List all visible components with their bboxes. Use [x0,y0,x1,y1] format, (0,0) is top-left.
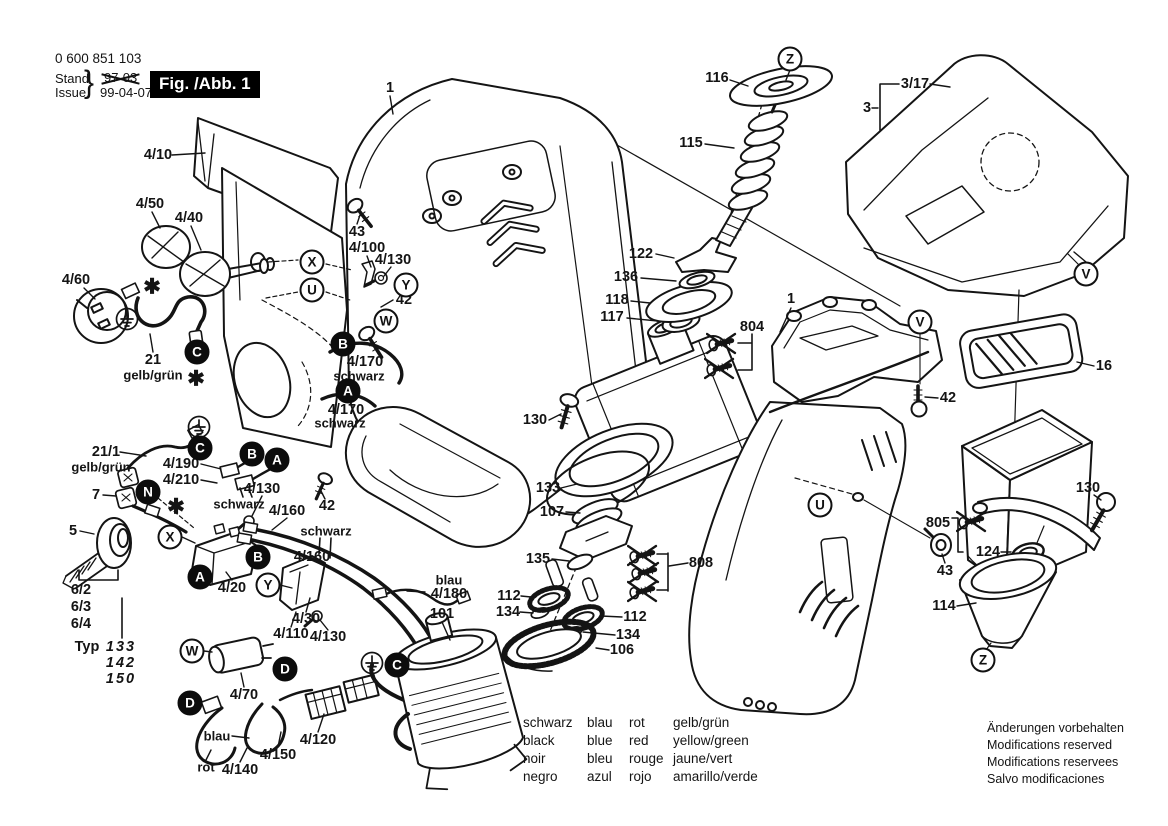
part-label-42: 42 [319,499,335,514]
revision-issue-date: 99-04-07 [100,85,152,100]
revision-superseded-date: 97-03 [104,70,137,85]
part-label-804: 804 [740,320,764,335]
part-label-rot: rot [197,761,214,774]
callout-v-icon: V [908,310,933,335]
part-label-134: 134 [496,605,520,620]
part-label-4-130: 4/130 [244,482,280,497]
part-label-122: 122 [629,247,653,262]
part-label-21-1: 21/1 [92,445,120,460]
part-label-130: 130 [523,413,547,428]
part-label-3-17: 3/17 [901,77,929,92]
part-label-130: 130 [1076,481,1100,496]
parts-diagram-page: 0 600 851 103 Stand Issue } 97-03 99-04-… [0,0,1168,826]
part-label-1: 1 [787,292,795,307]
part-label-42: 42 [940,391,956,406]
part-label-136: 136 [614,270,638,285]
part-label-4-60: 4/60 [62,273,90,288]
part-label-4-130: 4/130 [310,630,346,645]
part-label-4-160: 4/160 [269,504,305,519]
callout-y-icon: Y [394,273,419,298]
part-label-16: 16 [1096,359,1112,374]
part-label-808: 808 [689,556,713,571]
part-label-124: 124 [976,545,1000,560]
part-label-135: 135 [526,552,550,567]
callout-v-icon: V [1074,262,1099,287]
callout-u-icon: U [300,278,325,303]
part-label-blau: blau [204,730,231,743]
document-part-number: 0 600 851 103 [55,51,141,66]
callout-z-icon: Z [778,47,803,72]
modifications-reserved-note: Änderungen vorbehaltenModifications rese… [987,720,1124,788]
callout-c-icon: C [185,340,210,365]
part-label-6-2: 6/2 [71,583,91,598]
asterisk-icon: ✱ [143,275,161,300]
part-label-805: 805 [926,516,950,531]
part-label-112: 112 [623,610,646,625]
part-label-150: 150 [106,672,136,687]
callout-c-icon: C [188,436,213,461]
part-label-4-130: 4/130 [375,253,411,268]
part-label-typ: Typ [75,640,100,655]
asterisk-icon: ✱ [167,495,185,520]
part-label-4-40: 4/40 [175,211,203,226]
callout-d-icon: D [273,657,298,682]
part-label-117: 117 [600,310,623,325]
part-label-142: 142 [106,656,136,671]
revision-brace: } [84,65,94,101]
asterisk-icon: ✱ [187,367,205,392]
part-label-106: 106 [610,643,634,658]
part-label-43: 43 [349,225,365,240]
part-label-schwarz: schwarz [314,417,365,430]
part-label-5: 5 [69,524,77,539]
callout-x-icon: X [300,250,325,275]
callout-b-icon: B [240,442,265,467]
callout-a-icon: A [188,565,213,590]
color-legend-column: schwarzblacknoirnegro [523,714,573,786]
part-label-6-4: 6/4 [71,617,91,632]
part-label-4-120: 4/120 [300,733,336,748]
part-label-4-170: 4/170 [347,355,383,370]
part-label-4-110: 4/110 [273,627,309,642]
part-label-4-180: 4/180 [431,587,467,602]
part-label-115: 115 [679,136,702,151]
label-layer: 0 600 851 103 Stand Issue } 97-03 99-04-… [0,0,1168,826]
color-legend-column: gelb/grünyellow/greenjaune/vertamarillo/… [673,714,758,786]
callout-x-icon: X [158,525,183,550]
part-label-114: 114 [932,599,955,614]
part-label-4-160: 4/160 [294,550,330,565]
color-legend-column: rotredrougerojo [629,714,664,786]
callout-z-icon: Z [971,648,996,673]
part-label-112: 112 [497,589,520,604]
callout-d-icon: D [178,691,203,716]
part-label-3: 3 [863,101,871,116]
part-label-blau: blau [436,574,463,587]
part-label-116: 116 [705,71,728,86]
figure-title-badge: Fig. /Abb. 1 [150,71,260,98]
part-label-4-150: 4/150 [260,748,296,763]
part-label-4-70: 4/70 [230,688,258,703]
part-label-43: 43 [937,564,953,579]
part-label-7: 7 [92,488,100,503]
part-label-6-3: 6/3 [71,600,91,615]
revision-issue-label: Issue [55,85,86,100]
callout-n-icon: N [136,480,161,505]
part-label-21: 21 [145,353,161,368]
callout-b-icon: B [246,545,271,570]
part-label-4-50: 4/50 [136,197,164,212]
part-label-107: 107 [540,505,564,520]
callout-b-icon: B [331,332,356,357]
part-label-schwarz: schwarz [213,498,264,511]
color-legend-column: blaubluebleuazul [587,714,613,786]
callout-a-icon: A [265,448,290,473]
part-label-133: 133 [536,481,560,496]
part-label-4-210: 4/210 [163,473,199,488]
callout-w-icon: W [180,639,205,664]
part-label-118: 118 [605,293,628,308]
part-label-133: 133 [106,640,136,655]
callout-w-icon: W [374,309,399,334]
part-label-1: 1 [386,81,394,96]
callout-c-icon: C [385,653,410,678]
part-label-134: 134 [616,628,640,643]
part-label-4-20: 4/20 [218,581,246,596]
part-label-gelb-gr-n: gelb/grün [123,369,182,382]
part-label-4-30: 4/30 [292,612,320,627]
part-label-schwarz: schwarz [300,525,351,538]
part-label-4-140: 4/140 [222,763,258,778]
part-label-4-10: 4/10 [144,148,172,163]
part-label-gelb-gr-n: gelb/grün [71,461,130,474]
callout-u-icon: U [808,493,833,518]
callout-y-icon: Y [256,573,281,598]
callout-a-icon: A [336,379,361,404]
part-label-101: 101 [430,607,454,622]
